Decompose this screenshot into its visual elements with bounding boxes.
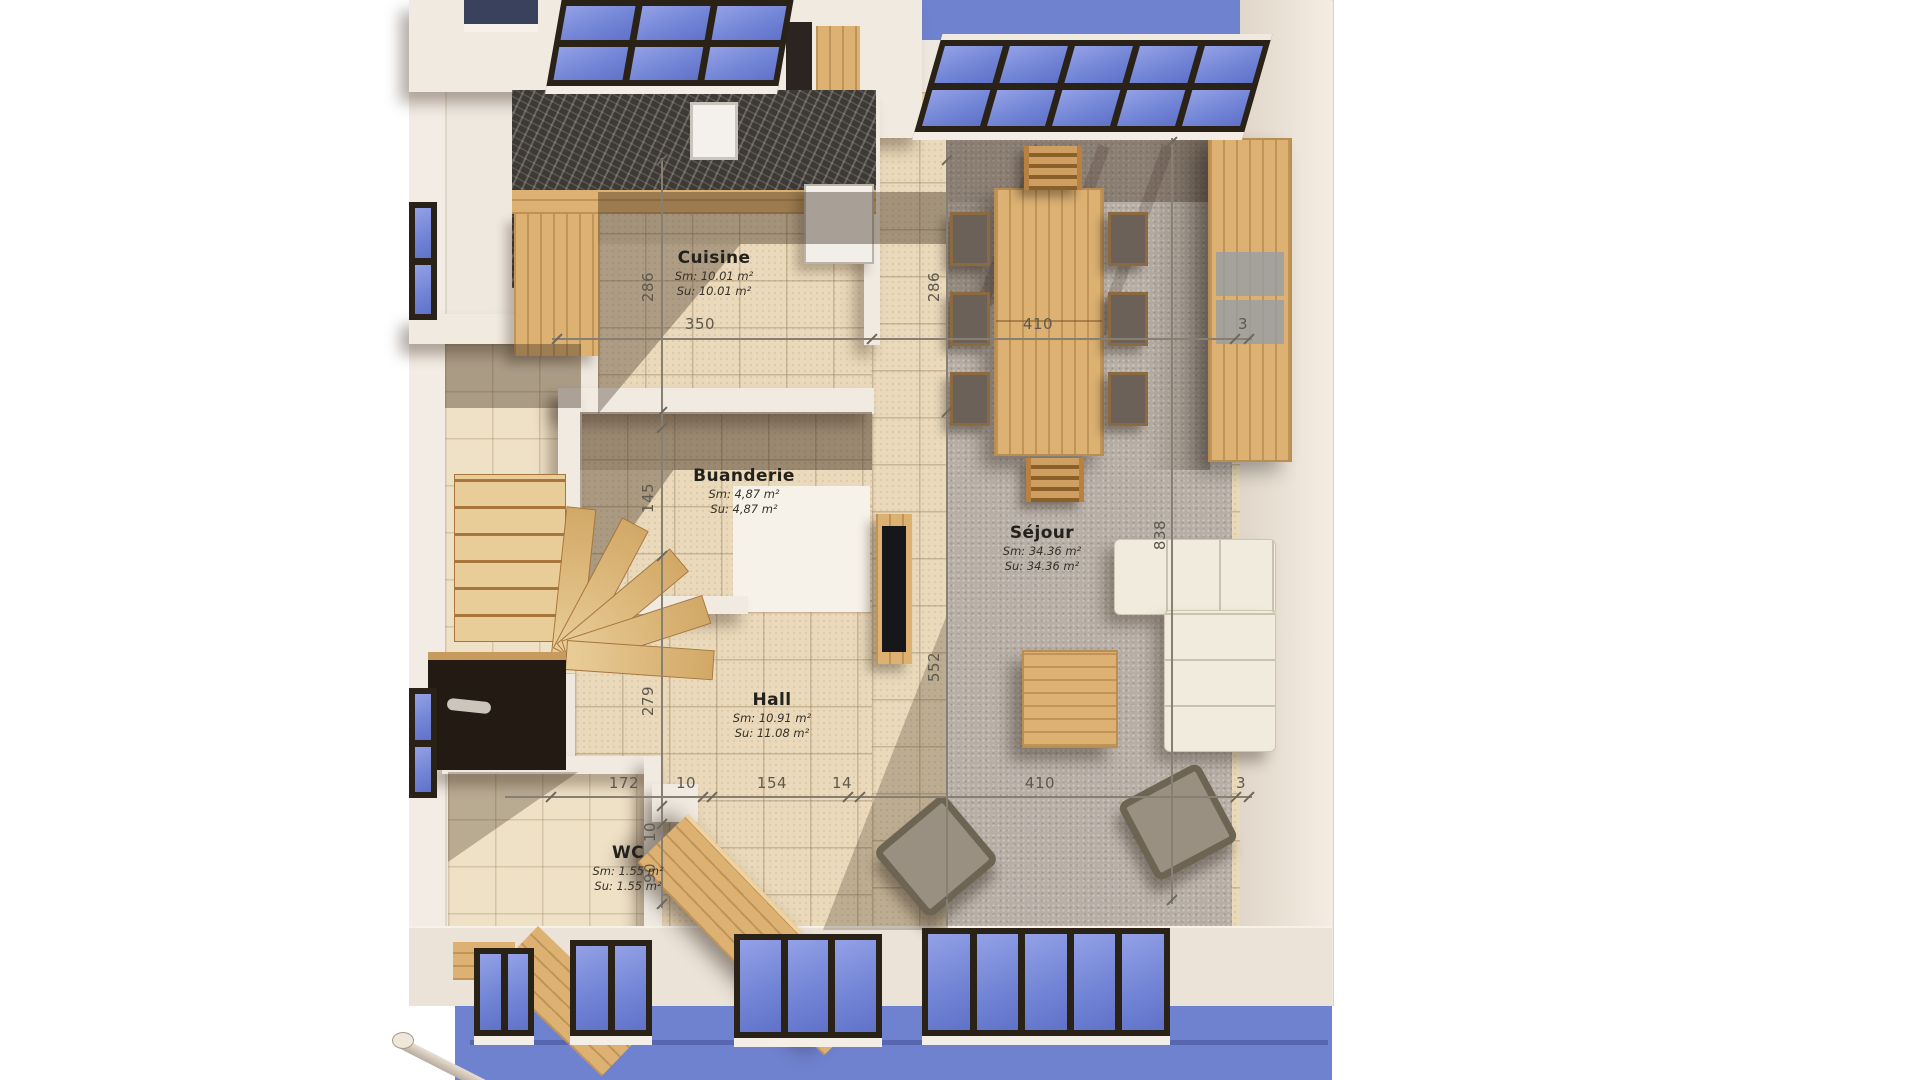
coffee-table: [1022, 650, 1118, 748]
dim-label-bottom-154: 154: [757, 774, 787, 792]
bottom-window-entry: [570, 940, 652, 1036]
dim-label-top-350: 350: [685, 315, 715, 333]
dining-chair-left-1: [950, 212, 990, 266]
dimension-line-bottom: [505, 796, 1252, 798]
dining-chair-right-1: [1108, 212, 1148, 266]
room-label-hall: Hall Sm: 10.91 m² Su: 11.08 m²: [733, 690, 811, 740]
stairs-dark-landing: [428, 660, 566, 770]
kitchen-sink: [690, 102, 738, 160]
dim-label-right-838: 838: [1151, 520, 1169, 550]
window-pane: [740, 940, 781, 1032]
skylight-pane: [553, 47, 628, 81]
dim-label-left-145: 145: [639, 483, 657, 513]
window-pane: [508, 954, 529, 1030]
room-sm: Sm: 1.55 m²: [592, 864, 663, 878]
room-sm: Sm: 10.91 m²: [733, 711, 811, 725]
dimension-line-left: [661, 158, 663, 908]
floor-plan-render: 350 410 3 172 10 154 14 410 3 286 145 27…: [0, 0, 1920, 1080]
conservatory-pane: [1194, 46, 1262, 83]
kitchen-island: [804, 184, 874, 264]
room-label-sejour: Séjour Sm: 34.36 m² Su: 34.36 m²: [1003, 523, 1081, 573]
conservatory-pane: [1182, 90, 1250, 127]
conservatory-pane: [1129, 46, 1197, 83]
dim-label-top-410: 410: [1023, 315, 1053, 333]
dim-label-bottom-3: 3: [1236, 774, 1246, 792]
top-left-window: [464, 0, 538, 24]
window-pane: [977, 934, 1019, 1030]
skylight-pane: [705, 47, 780, 81]
dining-chair-right-3: [1108, 372, 1148, 426]
window-pane: [415, 208, 431, 258]
bottom-sill-sejour: [922, 1036, 1170, 1045]
dim-label-bottom-10: 10: [676, 774, 696, 792]
conservatory-pane: [922, 90, 990, 127]
dim-label-left-10: 10: [641, 822, 659, 842]
room-name: Hall: [733, 690, 811, 711]
window-pane: [835, 940, 876, 1032]
bottom-window-hall: [734, 934, 882, 1038]
left-exterior-wall: [409, 0, 447, 1004]
wall-buanderie-top: [558, 388, 874, 414]
conservatory-pane: [1117, 90, 1185, 127]
dimension-line-top: [552, 338, 1252, 340]
dining-chair-bottom-ladderback: [1026, 458, 1084, 502]
window-pane: [480, 954, 501, 1030]
room-sm: Sm: 10.01 m²: [675, 269, 753, 283]
room-label-buanderie: Buanderie Sm: 4,87 m² Su: 4,87 m²: [693, 466, 795, 516]
window-pane: [415, 694, 431, 740]
window-pane: [928, 934, 970, 1030]
window-pane: [1122, 934, 1164, 1030]
kitchen-skylight: [545, 0, 794, 94]
sofa-chaise-section: [1164, 610, 1276, 752]
dining-chair-left-3: [950, 372, 990, 426]
room-name: Cuisine: [675, 248, 753, 269]
dim-label-left-286: 286: [639, 272, 657, 302]
top-left-window-beam: [464, 24, 538, 32]
dim-label-bottom-14: 14: [832, 774, 852, 792]
window-pane: [576, 946, 608, 1030]
skylight-pane: [712, 6, 787, 40]
gutter-pipe-cap: [392, 1032, 414, 1049]
window-pane: [415, 265, 431, 315]
buffet-glass-door-1: [1216, 252, 1284, 296]
stairs-upper-flight: [454, 474, 566, 642]
bottom-sill-hall: [734, 1038, 882, 1047]
dim-label-right-286: 286: [925, 272, 943, 302]
room-su: Su: 4,87 m²: [693, 502, 795, 516]
bottom-sill-entry: [570, 1036, 652, 1045]
conservatory-pane: [934, 46, 1002, 83]
window-pane: [1025, 934, 1067, 1030]
room-su: Su: 1.55 m²: [592, 879, 663, 893]
left-window-stairs: [409, 688, 437, 798]
window-pane: [1074, 934, 1116, 1030]
room-label-wc: WC Sm: 1.55 m² Su: 1.55 m²: [592, 843, 663, 893]
conservatory-pane: [999, 46, 1067, 83]
room-name: Buanderie: [693, 466, 795, 487]
bottom-sill-wc: [474, 1036, 534, 1045]
room-su: Su: 34.36 m²: [1003, 559, 1081, 573]
sofa-back-section: [1114, 539, 1276, 615]
window-pane: [415, 747, 431, 793]
bottom-window-sejour: [922, 928, 1170, 1036]
conservatory-pane: [1052, 90, 1120, 127]
conservatory-glazing: [912, 34, 1272, 140]
dim-label-bottom-172: 172: [609, 774, 639, 792]
dim-label-bottom-410: 410: [1025, 774, 1055, 792]
room-label-cuisine: Cuisine Sm: 10.01 m² Su: 10.01 m²: [675, 248, 753, 298]
skylight-pane: [629, 47, 704, 81]
kitchen-cabinet-left: [514, 214, 600, 356]
window-pane: [788, 940, 829, 1032]
left-window-kitchen: [409, 202, 437, 320]
window-pane: [615, 946, 647, 1030]
dimension-line-outer-right: [1171, 138, 1173, 904]
skylight-pane: [636, 6, 711, 40]
room-sm: Sm: 34.36 m²: [1003, 544, 1081, 558]
conservatory-pane: [1064, 46, 1132, 83]
dining-chair-top-ladderback: [1024, 146, 1082, 190]
room-name: Séjour: [1003, 523, 1081, 544]
room-sm: Sm: 4,87 m²: [693, 487, 795, 501]
room-name: WC: [592, 843, 663, 864]
conservatory-pane: [987, 90, 1055, 127]
room-su: Su: 11.08 m²: [733, 726, 811, 740]
room-su: Su: 10.01 m²: [675, 284, 753, 298]
bottom-window-wc: [474, 948, 534, 1036]
dimension-line-inner-right: [946, 155, 948, 925]
skylight-pane: [561, 6, 636, 40]
dim-label-right-552: 552: [925, 652, 943, 682]
tv-screen: [882, 526, 906, 652]
dim-label-left-279: 279: [639, 686, 657, 716]
dim-label-top-3: 3: [1238, 315, 1248, 333]
